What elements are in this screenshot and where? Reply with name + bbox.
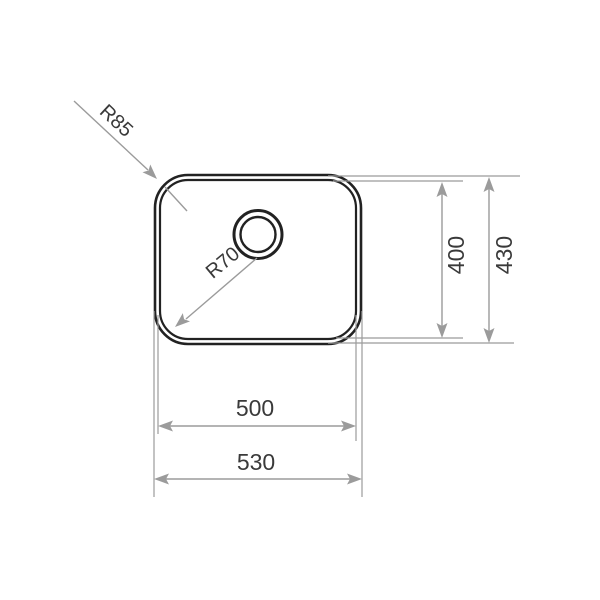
r70-arrowhead bbox=[175, 313, 190, 327]
drain-inner-circle bbox=[241, 217, 276, 252]
sink-technical-drawing: R85 R70 400 bbox=[0, 0, 600, 600]
dim-530: 530 bbox=[154, 449, 362, 485]
dim-500: 500 bbox=[158, 395, 356, 432]
r85-leader-tail bbox=[165, 187, 187, 211]
r85-label: R85 bbox=[95, 100, 137, 141]
drawing-canvas: R85 R70 400 bbox=[0, 0, 600, 600]
dim-500-label: 500 bbox=[236, 395, 274, 421]
dim-400-label: 400 bbox=[443, 236, 469, 274]
dim-400: 400 bbox=[437, 182, 470, 338]
drain-group bbox=[234, 211, 282, 259]
dim-430-label: 430 bbox=[491, 236, 517, 274]
dim-530-label: 530 bbox=[237, 449, 275, 475]
dim-430: 430 bbox=[484, 177, 518, 343]
r85-callout: R85 bbox=[74, 100, 187, 211]
